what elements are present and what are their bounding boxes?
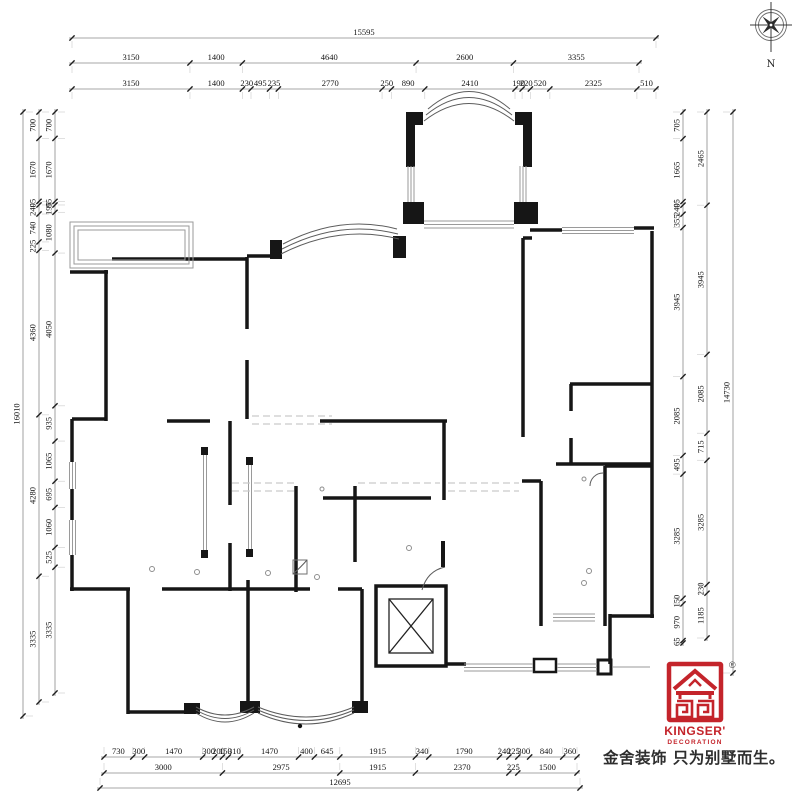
- dim-label: 240: [672, 203, 682, 216]
- dim-label: 970: [672, 616, 682, 629]
- dim-label: 1500: [539, 762, 556, 772]
- dim-label: 2465: [696, 150, 706, 167]
- dim-label: 150: [672, 595, 682, 608]
- dim-label: 1670: [28, 161, 38, 178]
- dim-label: 3150: [122, 52, 139, 62]
- dim-label: 1470: [165, 746, 182, 756]
- dimension-chain-bottom-inner: 7303001470300200150310147040064519153401…: [101, 746, 580, 760]
- dimension-chain-bottom-mid: 30002975191523702251500: [101, 762, 580, 776]
- dim-label: 715: [696, 440, 706, 453]
- dim-label: 4360: [28, 324, 38, 341]
- dim-label: 195: [44, 202, 54, 215]
- dim-label: 1080: [44, 224, 54, 241]
- dim-label: 225: [507, 762, 520, 772]
- dim-label: 240: [28, 203, 38, 216]
- dim-label: 300: [132, 746, 145, 756]
- dimension-chain-right-total: 14730: [722, 109, 736, 676]
- dim-label: 355: [672, 215, 682, 228]
- dimension-chain-bottom-total: 12695: [97, 777, 583, 791]
- dim-label: 695: [44, 488, 54, 501]
- dim-label: 2085: [672, 408, 682, 425]
- dim-label: 840: [540, 746, 553, 756]
- elevator-shaft-icon: [376, 586, 446, 666]
- dim-label: 4640: [321, 52, 338, 62]
- dim-label: 3285: [696, 514, 706, 531]
- dim-label: 525: [44, 551, 54, 564]
- dimension-annotations: 1559531501400464026003355315014002304952…: [12, 27, 736, 791]
- floor-plan-sheet: 1559531501400464026003355315014002304952…: [0, 0, 800, 795]
- kingser-logo-mark: [669, 664, 721, 720]
- dim-label: 400: [300, 746, 313, 756]
- registered-mark: ®: [729, 660, 736, 670]
- dim-label: 890: [402, 78, 415, 88]
- dim-label: 1915: [369, 746, 386, 756]
- dim-label: 3335: [44, 622, 54, 639]
- dim-label: 2770: [322, 78, 339, 88]
- dim-label: 1400: [208, 78, 225, 88]
- dimension-chain-left-mid: 700167095240740225436042803335: [28, 109, 50, 705]
- dim-label: 520: [534, 78, 547, 88]
- logo-sub-text: DECORATION: [667, 739, 722, 746]
- dim-label: 4280: [28, 487, 38, 504]
- dim-label: 1065: [44, 453, 54, 470]
- dim-label: 2325: [585, 78, 602, 88]
- dim-label: 230: [240, 78, 253, 88]
- dim-label: 3945: [672, 294, 682, 311]
- dim-label: 2370: [454, 762, 471, 772]
- dim-label: 1060: [44, 519, 54, 536]
- dim-label: 300: [517, 746, 530, 756]
- dim-label: 65: [672, 638, 682, 647]
- dim-label: 230: [696, 582, 706, 595]
- dim-label: 1670: [44, 161, 54, 178]
- walls-layer: [70, 112, 654, 714]
- compass-north-label: N: [767, 59, 776, 70]
- dim-label: 235: [268, 78, 281, 88]
- dim-label: 225: [28, 240, 38, 253]
- compass-icon: N: [750, 2, 792, 70]
- dim-label: 3355: [568, 52, 585, 62]
- dim-label: 700: [44, 119, 54, 132]
- logo-brand-text: KINGSER': [664, 724, 726, 738]
- logo-tagline: 金舍装饰 只为别墅而生。: [602, 748, 785, 767]
- dim-label: 14730: [722, 382, 732, 403]
- details-layer: [150, 416, 604, 590]
- dimension-chain-right-mid: 24653945208571532852301185: [696, 109, 710, 641]
- dim-label: 2600: [456, 52, 473, 62]
- dim-label: 645: [321, 746, 334, 756]
- dim-label: 220: [520, 78, 533, 88]
- dim-label: 3000: [155, 762, 172, 772]
- dimension-chain-top-total: 15595: [69, 27, 659, 48]
- dim-label: 935: [44, 417, 54, 430]
- dim-label: 2975: [273, 762, 290, 772]
- dim-label: 340: [416, 746, 429, 756]
- dim-label: 1470: [261, 746, 278, 756]
- dim-label: 3335: [28, 631, 38, 648]
- floor-plan-drawing: 1559531501400464026003355315014002304952…: [0, 0, 800, 795]
- dim-label: 15595: [353, 27, 374, 37]
- dim-label: 3285: [672, 528, 682, 545]
- dim-label: 3945: [696, 271, 706, 288]
- dim-label: 1400: [208, 52, 225, 62]
- dim-label: 1790: [456, 746, 473, 756]
- dim-label: 12695: [329, 777, 350, 787]
- dim-label: 740: [28, 222, 38, 235]
- curved-windows-layer: [196, 92, 514, 729]
- dim-label: 510: [640, 78, 653, 88]
- dim-label: 705: [672, 119, 682, 132]
- dim-label: 1665: [672, 162, 682, 179]
- dim-label: 1915: [369, 762, 386, 772]
- dim-label: 1185: [696, 607, 706, 624]
- dim-label: 2410: [461, 78, 478, 88]
- dim-label: 360: [564, 746, 577, 756]
- kingser-logo: ® KINGSER' DECORATION 金舍装饰 只为别墅而生。: [602, 660, 785, 767]
- dim-label: 250: [380, 78, 393, 88]
- dim-label: 16010: [12, 403, 22, 424]
- dim-label: 2085: [696, 385, 706, 402]
- dim-label: 4050: [44, 321, 54, 338]
- dim-label: 495: [672, 458, 682, 471]
- dim-label: 495: [254, 78, 267, 88]
- windows-layer: [70, 166, 651, 671]
- dimension-chain-top-inner: 3150140023049523527702508902410190220520…: [69, 78, 659, 99]
- dim-label: 730: [112, 746, 125, 756]
- dimension-chain-top-mid: 31501400464026003355: [69, 52, 642, 73]
- dimension-chain-left-inner: 7001670951951080405093510656951060525333…: [44, 109, 66, 696]
- dim-label: 310: [228, 746, 241, 756]
- dim-label: 700: [28, 119, 38, 132]
- dim-label: 3150: [122, 78, 139, 88]
- dimension-chain-right-inner: 70516659524035539452085495328515097065: [672, 109, 686, 646]
